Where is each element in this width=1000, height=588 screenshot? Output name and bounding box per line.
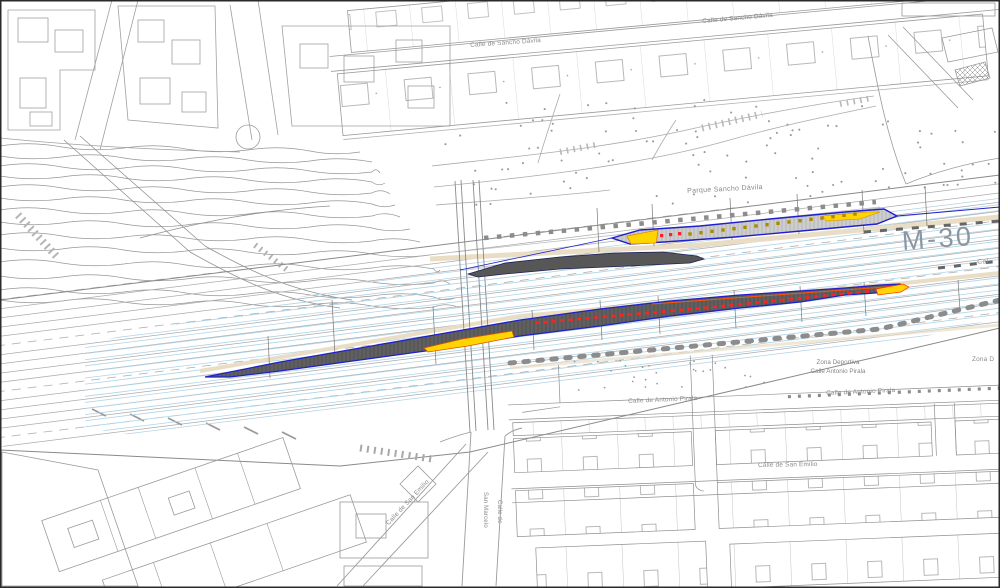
blocks-bottom-right	[506, 343, 1000, 588]
lane-chevrons	[92, 409, 432, 459]
slope-paths	[18, 125, 352, 308]
blocks-bottom-left	[2, 423, 436, 588]
blocks-sancho-davila-band	[326, 0, 1000, 140]
street-san-emilio-diagonal	[337, 444, 488, 586]
park-tree-dots-right	[875, 120, 997, 188]
plan-viewport: Calle de Sancho Dávila Calle de Sancho D…	[0, 0, 1000, 588]
contour-lines	[0, 144, 460, 309]
street-san-marcelo	[440, 428, 522, 586]
plan-canvas	[0, 0, 1000, 588]
